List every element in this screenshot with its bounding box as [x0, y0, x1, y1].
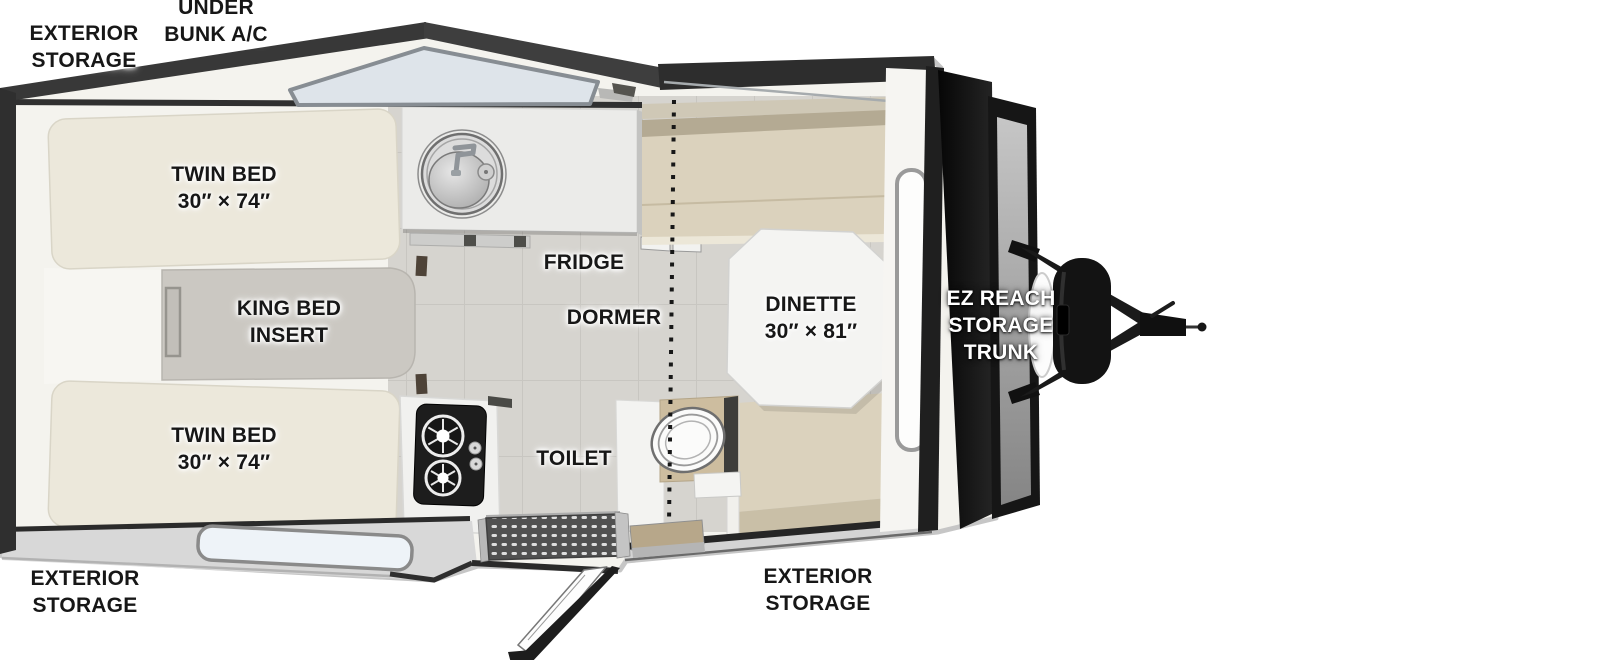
label-ez-reach-trunk: EZ REACH STORAGE TRUNK [947, 285, 1056, 366]
sink [418, 130, 506, 218]
label-line: TWIN BED [171, 161, 276, 188]
dinette-bench-front [642, 97, 888, 245]
label-line: TRUNK [947, 339, 1056, 366]
label-line: STORAGE [947, 312, 1056, 339]
label-twin-bed-bottom: TWIN BED 30″ × 74″ [171, 422, 276, 476]
label-line: KING BED [237, 295, 341, 322]
king-bed-insert [44, 256, 428, 394]
label-exterior-storage-top: EXTERIOR STORAGE [30, 20, 139, 74]
bed-post [415, 374, 427, 395]
label-line: STORAGE [30, 47, 139, 74]
label-line: BUNK A/C [164, 21, 267, 48]
label-exterior-storage-door: EXTERIOR STORAGE [764, 563, 873, 617]
entry-door [508, 566, 620, 660]
label-line: FRIDGE [544, 249, 625, 276]
label-line: 30″ × 74″ [171, 188, 276, 215]
bed-post [415, 256, 427, 277]
rear-wall [0, 88, 16, 554]
label-twin-bed-top: TWIN BED 30″ × 74″ [171, 161, 276, 215]
label-line: STORAGE [31, 592, 140, 619]
label-under-bunk-ac: UNDER BUNK A/C [164, 0, 267, 48]
coupler-latch-handle [1152, 303, 1173, 316]
kitchen-counter [402, 107, 643, 248]
front-wall [880, 66, 944, 532]
label-exterior-storage-rear: EXTERIOR STORAGE [31, 565, 140, 619]
stove [400, 396, 512, 534]
label-line: DINETTE [765, 291, 858, 318]
label-line: EXTERIOR [31, 565, 140, 592]
label-line: UNDER [164, 0, 267, 21]
label-line: TOILET [536, 445, 611, 472]
label-line: TWIN BED [171, 422, 276, 449]
label-line: 30″ × 74″ [171, 449, 276, 476]
label-line: DORMER [567, 304, 662, 331]
label-dormer: DORMER [567, 304, 662, 331]
dinette-bench-rear [727, 393, 888, 545]
label-line: STORAGE [764, 590, 873, 617]
burner [426, 461, 460, 495]
propane-tank-cover [1053, 258, 1111, 384]
label-dinette: DINETTE 30″ × 81″ [765, 291, 858, 345]
burner [423, 416, 463, 456]
label-line: EZ REACH [947, 285, 1056, 312]
label-line: EXTERIOR [764, 563, 873, 590]
hitch-coupler [1140, 312, 1186, 336]
door-threshold [630, 520, 705, 558]
floorplan-canvas: EXTERIOR STORAGE UNDER BUNK A/C TWIN BED… [0, 0, 1600, 660]
hitch-ball-knob [1198, 323, 1207, 332]
label-fridge: FRIDGE [544, 249, 625, 276]
label-line: INSERT [237, 322, 341, 349]
entry-step [478, 511, 630, 562]
label-king-bed-insert: KING BED INSERT [237, 295, 341, 349]
label-line: EXTERIOR [30, 20, 139, 47]
label-line: 30″ × 81″ [765, 318, 858, 345]
label-toilet: TOILET [536, 445, 611, 472]
insert-handle [166, 288, 180, 356]
